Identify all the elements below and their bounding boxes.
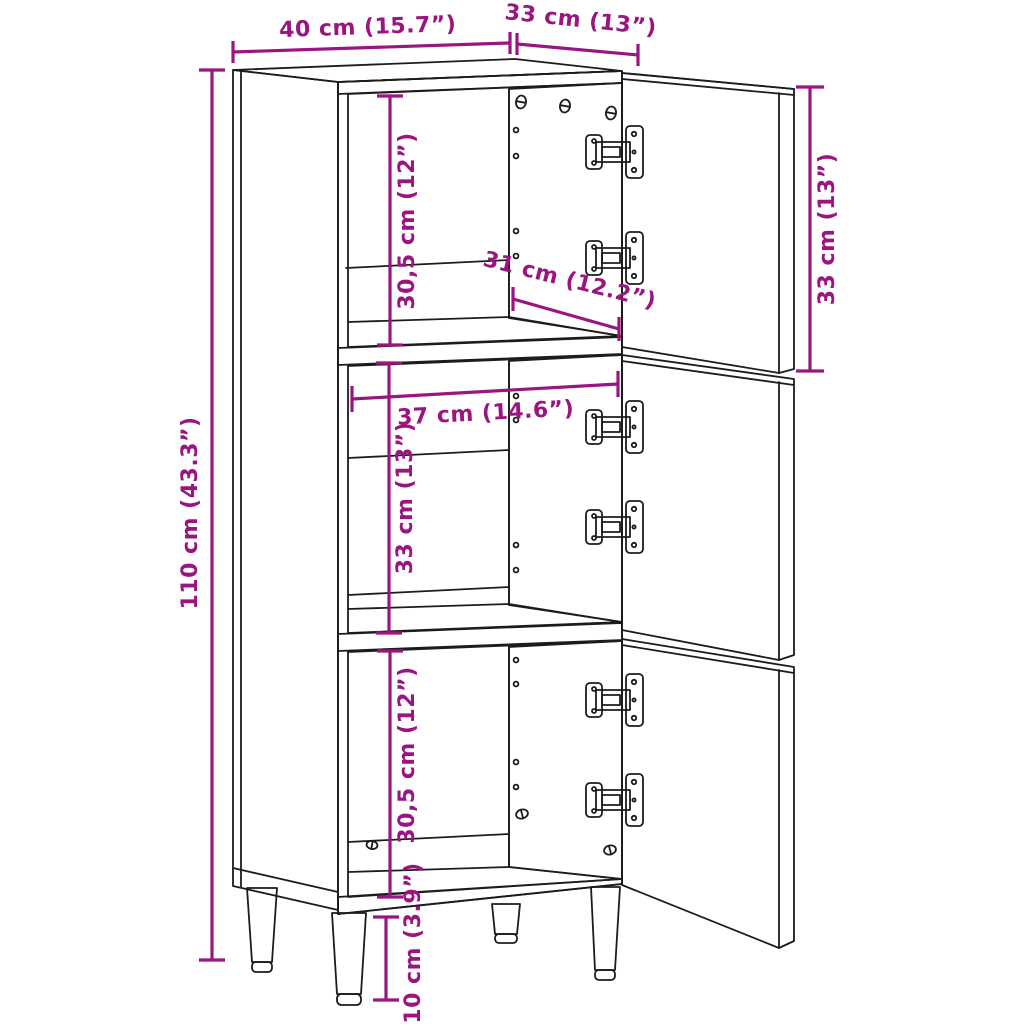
shelf-pin-hole — [514, 568, 519, 573]
dimension-total-height: 110 cm (43.3”) — [178, 70, 225, 960]
hinge — [586, 674, 643, 726]
dimension-label-mid-compartment: 33 cm (13”) — [393, 422, 418, 575]
shelf2-back-edge — [348, 587, 509, 595]
door-middle — [622, 355, 794, 660]
cabinet-top-edge-band — [338, 71, 622, 94]
leg-back-right — [492, 904, 520, 943]
shelf-pin-hole — [514, 229, 519, 234]
cabinet — [233, 59, 794, 1005]
hinge — [586, 501, 643, 553]
dimension-label-top-width: 40 cm (15.7”) — [279, 12, 457, 43]
dimension-bottom-compartment-height: 30,5 cm (12”) — [377, 651, 420, 897]
door-top-inner-edge — [622, 645, 794, 673]
shelf-pin-hole — [514, 154, 519, 159]
compartment-top — [346, 83, 622, 347]
dimension-label-total-height: 110 cm (43.3”) — [178, 416, 203, 609]
door-bottom — [622, 639, 794, 948]
assembly-screws-top — [515, 95, 617, 121]
cabinet-front-frame — [338, 71, 622, 914]
door-top-inner-edge — [622, 361, 794, 385]
dimension-label-top-depth: 33 cm (13”) — [503, 0, 657, 41]
cabinet-doors — [622, 73, 794, 948]
shelf-pin-hole — [514, 682, 519, 687]
shelf-pin-hole — [514, 394, 519, 399]
dimension-label-leg-height: 10 cm (3.9”) — [401, 862, 426, 1023]
hinges — [586, 126, 643, 826]
dimension-label-top-compartment: 30,5 cm (12”) — [395, 132, 420, 309]
dimension-top-depth: 33 cm (13”) — [503, 0, 657, 66]
dimension-top-compartment-height: 30,5 cm (12”) — [377, 96, 420, 345]
leg-front-right — [591, 887, 620, 980]
back-panel-seam — [348, 450, 509, 458]
dimension-leg-height: 10 cm (3.9”) — [373, 862, 426, 1023]
door-top — [622, 73, 794, 373]
dimension-label-bottom-compartment: 30,5 cm (12”) — [395, 666, 420, 843]
dimension-door-height: 33 cm (13”) — [796, 87, 840, 371]
leg-front-left — [332, 913, 366, 1005]
dimension-label-inner-width: 37 cm (14.6”) — [397, 396, 575, 430]
shelf-pin-hole — [514, 128, 519, 133]
cabinet-line-drawing: 40 cm (15.7”) 33 cm (13”) 30,5 cm (12”) … — [0, 0, 1024, 1024]
dimension-label-door-height: 33 cm (13”) — [815, 153, 840, 306]
hinge — [586, 126, 643, 178]
shelf-pin-hole — [514, 760, 519, 765]
furniture-dimension-diagram: 40 cm (15.7”) 33 cm (13”) 30,5 cm (12”) … — [0, 0, 1024, 1024]
shelf-pin-hole — [514, 785, 519, 790]
compartment-bottom-right-wall — [509, 641, 622, 879]
cabinet-left-side-panel — [233, 70, 338, 910]
shelf-pin-hole — [514, 658, 519, 663]
compartment-middle-right-wall — [509, 355, 622, 622]
hinge — [586, 774, 643, 826]
hinge — [586, 401, 643, 453]
dimension-inner-width: 37 cm (14.6”) — [352, 371, 618, 431]
shelf-pin-hole — [514, 543, 519, 548]
dimension-top-width: 40 cm (15.7”) — [233, 12, 510, 63]
leg-back-left — [247, 888, 277, 972]
